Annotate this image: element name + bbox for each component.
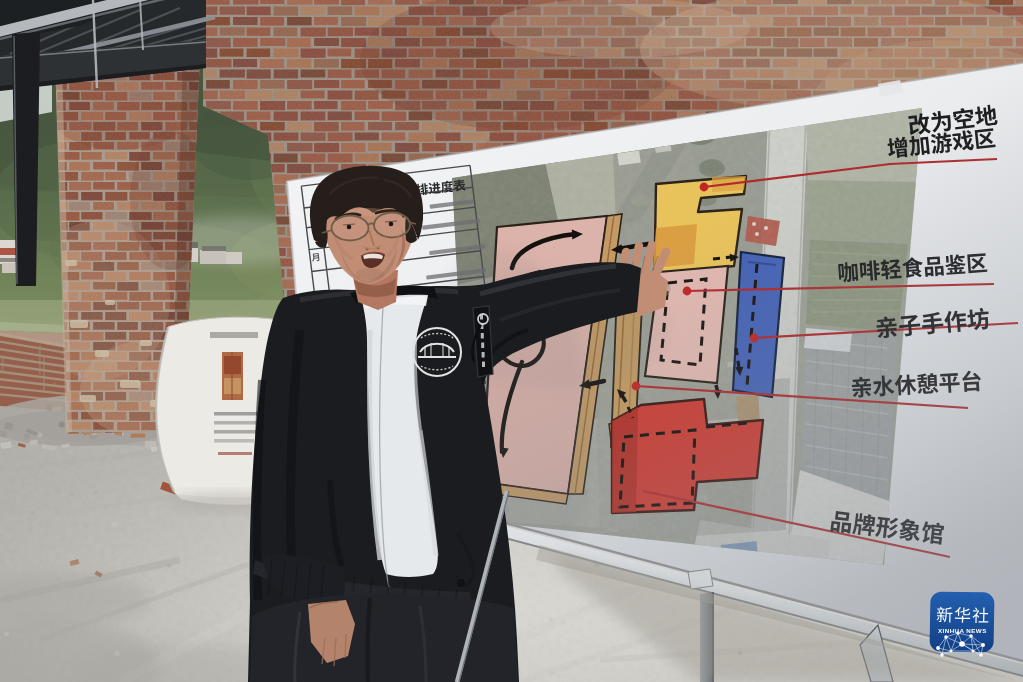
svg-text:XINHUA NEWS: XINHUA NEWS (938, 627, 987, 634)
